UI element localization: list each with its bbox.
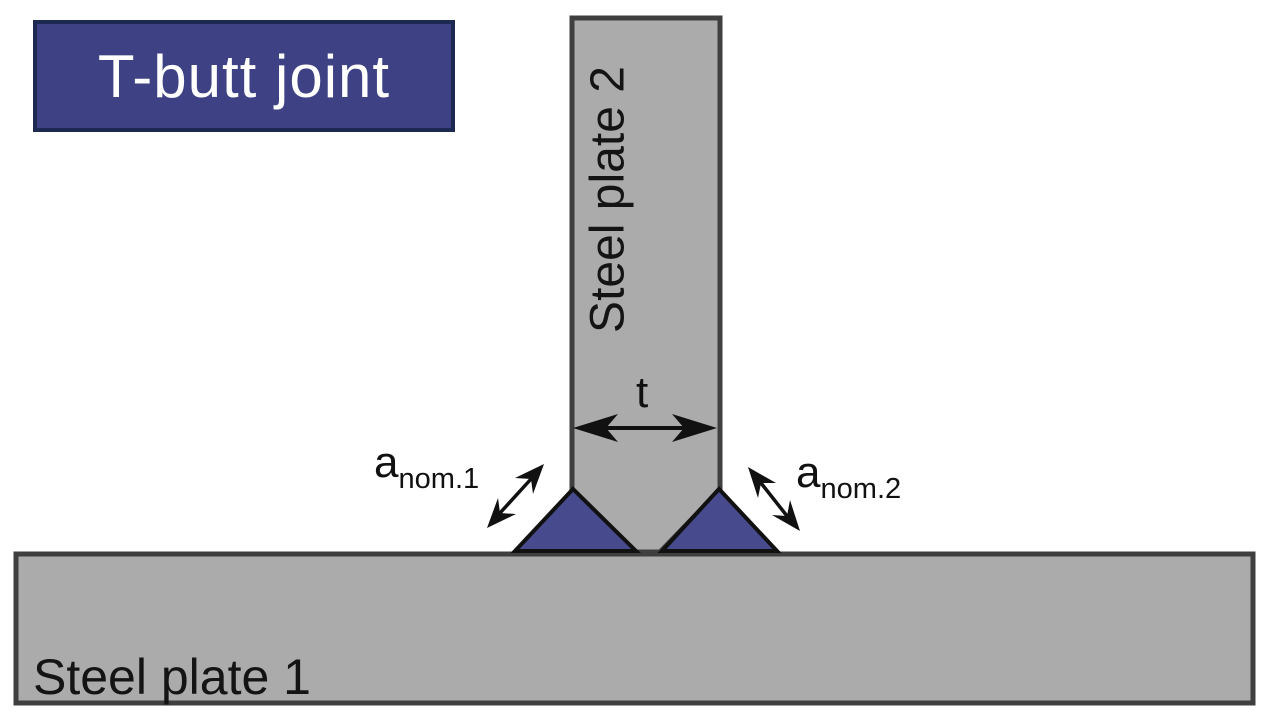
diagram-title: T-butt joint	[98, 42, 390, 111]
weld-right-label: anom.2	[796, 448, 901, 504]
weld-arrow-right	[748, 467, 800, 531]
weld-left-label-main: a	[374, 438, 398, 487]
title-box: T-butt joint	[33, 20, 455, 132]
weld-arrow-right-head-upper	[748, 467, 776, 498]
weld-right-label-main: a	[796, 448, 820, 497]
weld-right-label-sub: nom.2	[820, 473, 901, 505]
weld-left-label-sub: nom.1	[398, 463, 479, 495]
thickness-label: t	[636, 368, 648, 418]
diagram-canvas: T-butt joint Steel plate 2 Steel plate 1…	[0, 0, 1279, 723]
weld-arrow-left	[487, 464, 544, 528]
base-plate-label: Steel plate 1	[33, 648, 311, 706]
weld-left-label: anom.1	[374, 438, 479, 494]
weld-arrow-left-shaft	[500, 479, 531, 513]
vertical-plate-label: Steel plate 2	[581, 0, 636, 400]
weld-arrow-right-shaft	[761, 483, 787, 516]
